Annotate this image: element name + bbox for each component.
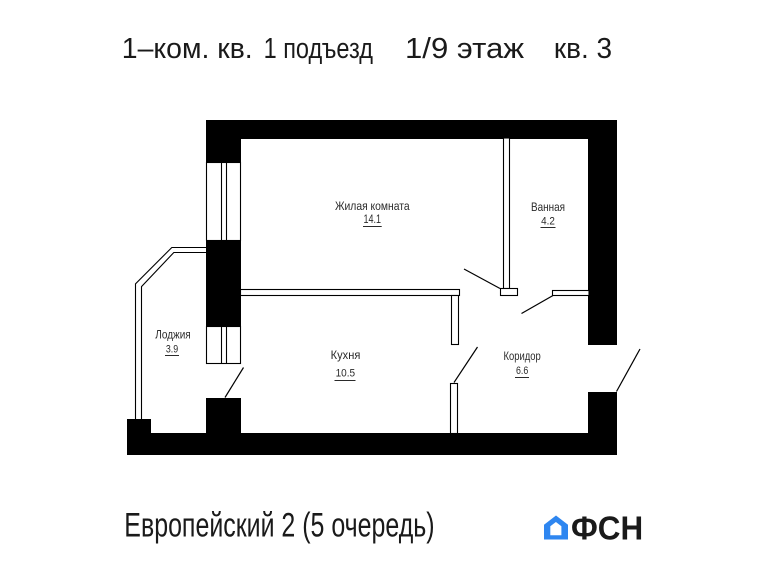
svg-text:Жилая комната: Жилая комната xyxy=(335,200,410,213)
svg-text:4.2: 4.2 xyxy=(541,215,555,228)
svg-text:1/9 этаж: 1/9 этаж xyxy=(405,33,524,65)
svg-text:Коридор: Коридор xyxy=(503,350,540,363)
svg-text:Лоджия: Лоджия xyxy=(155,329,190,342)
svg-text:6.6: 6.6 xyxy=(516,365,529,377)
svg-text:кв. 3: кв. 3 xyxy=(554,33,612,66)
svg-text:Ванная: Ванная xyxy=(531,201,565,214)
svg-text:1–ком. кв.: 1–ком. кв. xyxy=(122,33,253,65)
svg-text:3.9: 3.9 xyxy=(166,344,179,356)
svg-text:10.5: 10.5 xyxy=(336,367,355,380)
svg-text:1 подъезд: 1 подъезд xyxy=(264,32,373,65)
svg-text:14.1: 14.1 xyxy=(364,214,382,226)
svg-text:ФСН: ФСН xyxy=(571,510,643,547)
svg-text:Кухня: Кухня xyxy=(331,350,361,362)
svg-text:Европейский 2 (5 очередь): Европейский 2 (5 очередь) xyxy=(124,507,434,545)
